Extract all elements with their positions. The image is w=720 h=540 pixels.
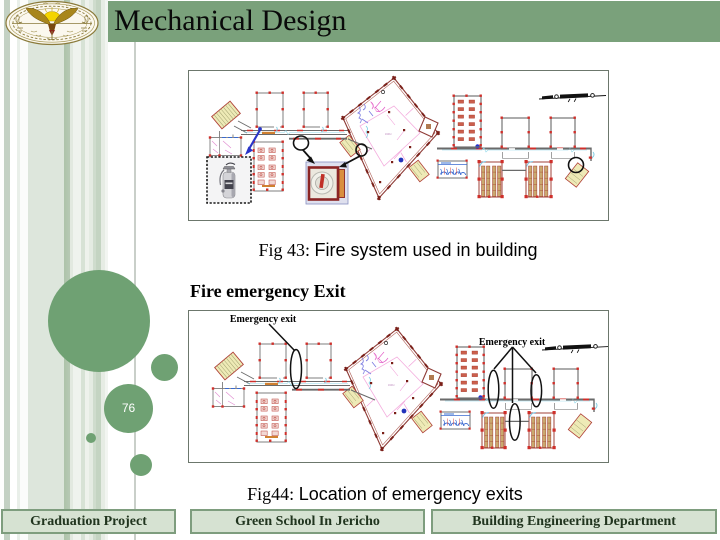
svg-text:Emergency exit: Emergency exit [230, 314, 297, 325]
svg-text:Emergency exit: Emergency exit [479, 337, 546, 348]
